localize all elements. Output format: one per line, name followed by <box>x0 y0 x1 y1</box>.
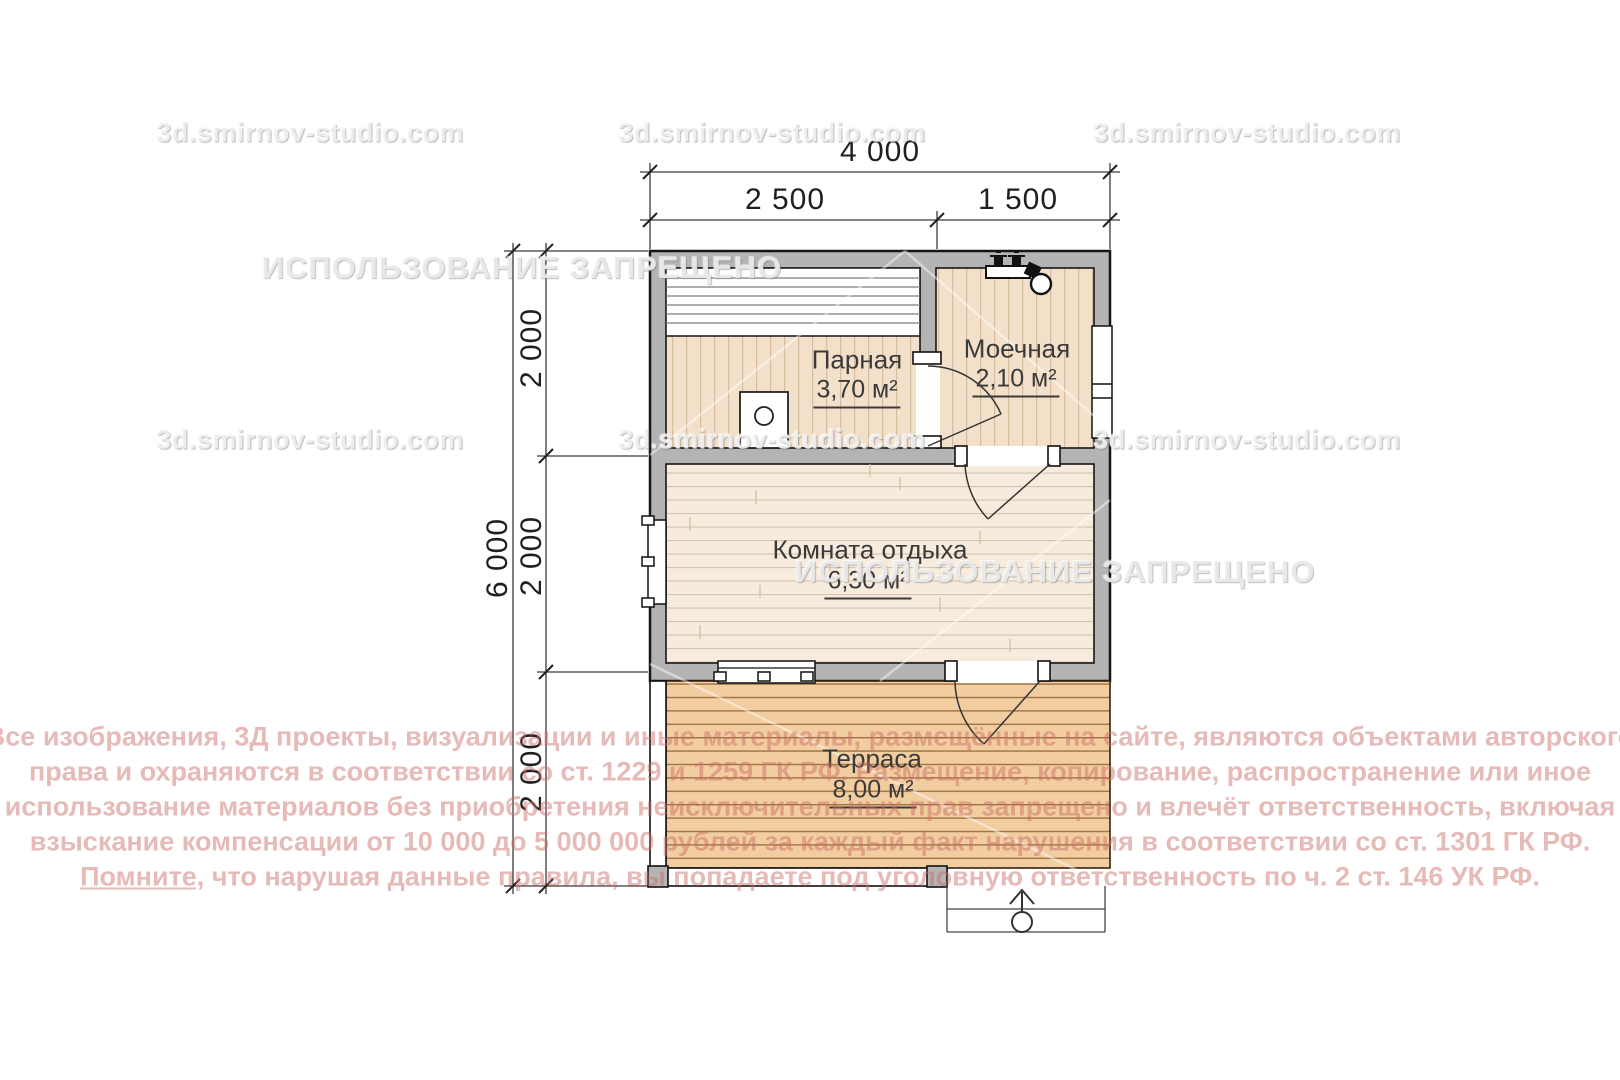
watermark-site-4: 3d.smirnov-studio.com <box>156 425 464 456</box>
copyright-line-1: Все изображения, 3Д проекты, визуализаци… <box>0 722 1620 753</box>
copyright-line-4: взыскание компенсации от 10 000 до 5 000… <box>30 827 1591 858</box>
watermark-site-6: 3d.smirnov-studio.com <box>1093 425 1401 456</box>
room-label-parnaya: Парная <box>812 345 903 376</box>
window-lounge-left <box>642 516 666 607</box>
watermark-ban-2: ИСПОЛЬЗОВАНИЕ ЗАПРЕЩЕНО <box>795 554 1316 590</box>
watermark-site-3: 3d.smirnov-studio.com <box>1093 118 1401 149</box>
watermark-site-2: 3d.smirnov-studio.com <box>618 118 926 149</box>
floorplan-canvas: 4 000 2 500 1 500 6 000 2 000 2 000 2 00… <box>0 0 1620 1080</box>
copyright-line-3: использование материалов без приобретени… <box>5 792 1615 823</box>
entrance-arrow-icon <box>1010 890 1034 932</box>
copyright-line-2: права и охраняются в соответствии со ст.… <box>29 757 1591 788</box>
room-label-moechnaya: Моечная <box>964 334 1070 365</box>
dim-height-seg-2: 2 000 <box>515 516 549 596</box>
room-area-moechnaya: 2,10 м² <box>972 365 1059 398</box>
room-area-parnaya: 3,70 м² <box>813 376 900 409</box>
dim-height-seg-1: 2 000 <box>515 308 549 388</box>
watermark-site-1: 3d.smirnov-studio.com <box>156 118 464 149</box>
window-lounge-bottom <box>714 661 815 683</box>
watermark-ban-1: ИСПОЛЬЗОВАНИЕ ЗАПРЕЩЕНО <box>262 250 783 286</box>
copyright-line-5: Помните, что нарушая данные правила, вы … <box>80 862 1540 893</box>
copyright-line-5-rest: что нарушая данные правила, вы попадаете… <box>204 862 1540 892</box>
window-washroom-right <box>1092 326 1112 438</box>
entrance-steps <box>947 886 1105 932</box>
dim-width-seg-1: 2 500 <box>745 183 825 217</box>
dim-width-seg-2: 1 500 <box>978 183 1058 217</box>
dim-height-total: 6 000 <box>481 518 515 598</box>
copyright-underlined-word: Помните, <box>80 862 204 892</box>
watermark-site-5: 3d.smirnov-studio.com <box>618 425 926 456</box>
